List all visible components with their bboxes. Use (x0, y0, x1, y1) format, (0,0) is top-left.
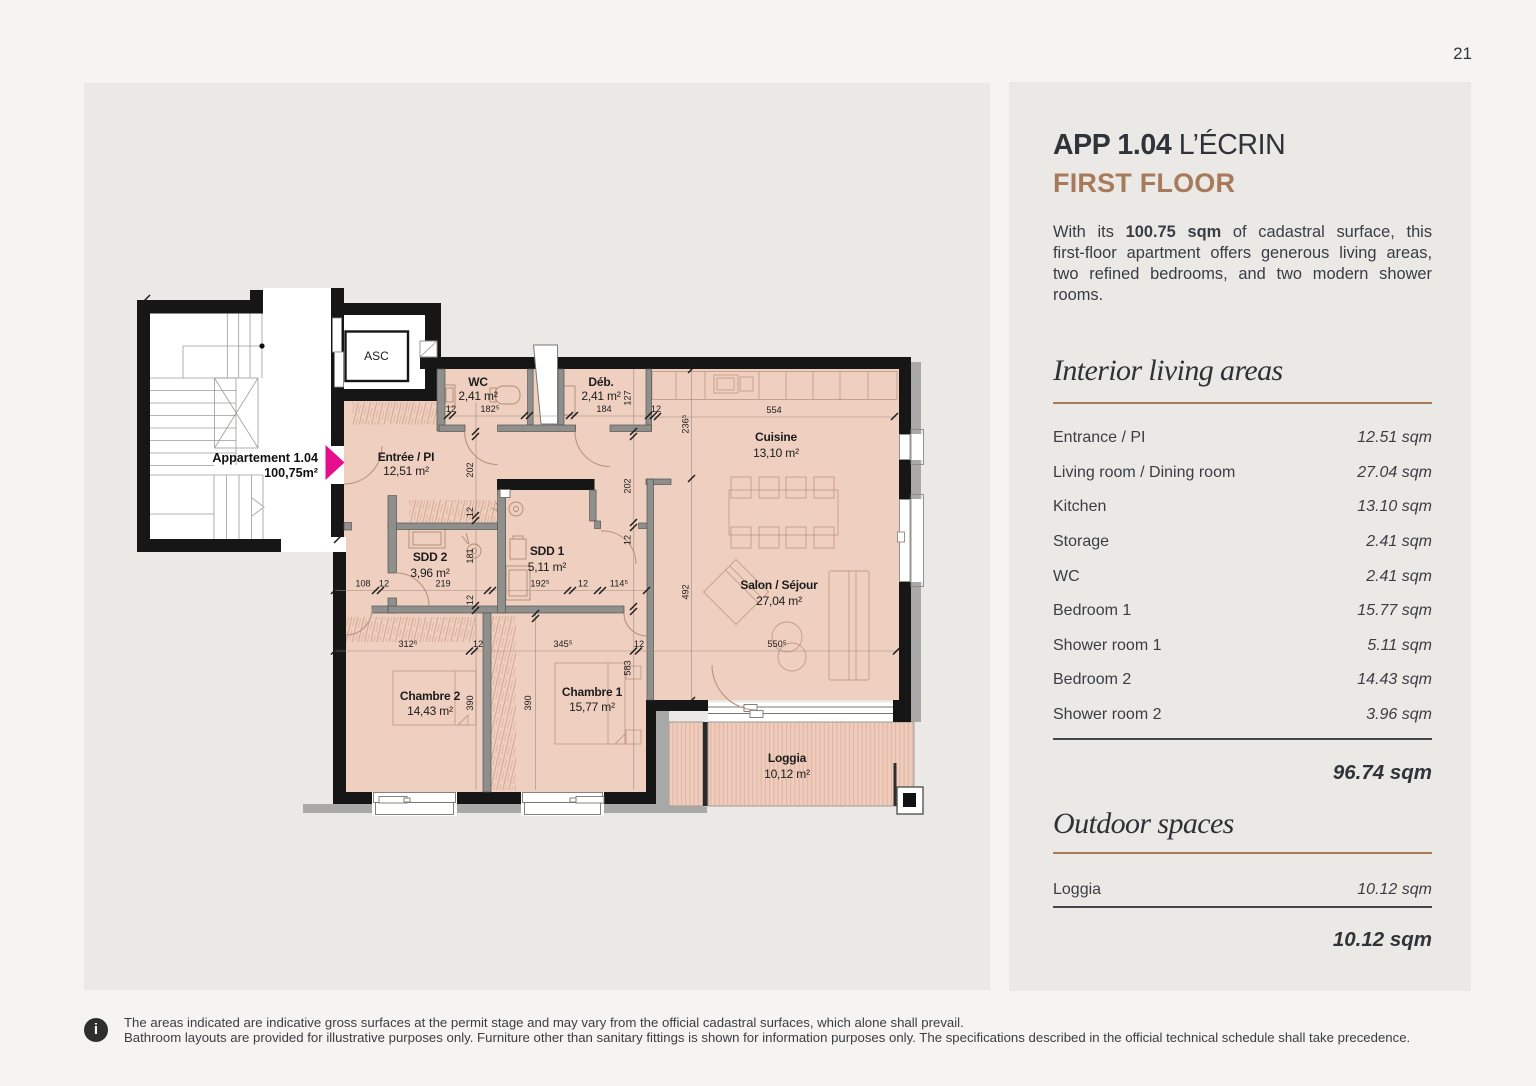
svg-text:SDD 2: SDD 2 (413, 550, 448, 564)
svg-text:12: 12 (379, 579, 389, 589)
svg-text:Salon / Séjour: Salon / Séjour (740, 578, 818, 592)
svg-text:Déb.: Déb. (588, 375, 613, 389)
svg-text:390: 390 (465, 695, 475, 710)
svg-text:108: 108 (355, 579, 370, 589)
svg-text:12: 12 (473, 639, 483, 649)
svg-text:554: 554 (766, 405, 781, 415)
svg-text:12: 12 (634, 639, 644, 649)
svg-text:Chambre 2: Chambre 2 (400, 689, 461, 703)
svg-text:12: 12 (651, 404, 661, 414)
svg-text:12: 12 (578, 579, 588, 589)
svg-text:5,11 m²: 5,11 m² (528, 560, 567, 574)
svg-text:SDD 1: SDD 1 (530, 544, 565, 558)
svg-text:12: 12 (446, 404, 456, 414)
svg-text:390: 390 (523, 695, 533, 710)
svg-text:312⁶: 312⁶ (398, 639, 417, 649)
svg-text:192⁵: 192⁵ (530, 579, 549, 589)
svg-text:184: 184 (596, 404, 611, 414)
svg-text:114⁵: 114⁵ (610, 579, 629, 589)
svg-text:12,51 m²: 12,51 m² (383, 464, 429, 478)
svg-text:13,10 m²: 13,10 m² (753, 446, 799, 460)
svg-text:Chambre 1: Chambre 1 (562, 685, 623, 699)
svg-text:219: 219 (435, 579, 450, 589)
svg-text:12: 12 (465, 595, 475, 605)
svg-text:Entrée / PI: Entrée / PI (378, 450, 435, 464)
svg-text:14,43 m²: 14,43 m² (407, 704, 453, 718)
svg-text:550⁵: 550⁵ (767, 639, 786, 649)
svg-text:182⁵: 182⁵ (480, 404, 499, 414)
svg-text:ASC: ASC (364, 349, 389, 363)
svg-text:10,12 m²: 10,12 m² (764, 767, 810, 781)
svg-text:202: 202 (623, 478, 633, 493)
svg-text:345⁵: 345⁵ (553, 639, 572, 649)
svg-text:127: 127 (623, 390, 633, 405)
svg-text:Appartement 1.04: Appartement 1.04 (212, 451, 318, 465)
svg-text:2,41 m²: 2,41 m² (581, 389, 620, 403)
svg-text:Loggia: Loggia (768, 751, 807, 765)
svg-text:2,41 m²: 2,41 m² (458, 389, 497, 403)
svg-text:Cuisine: Cuisine (755, 430, 797, 444)
svg-text:181: 181 (465, 548, 475, 563)
svg-text:12: 12 (465, 507, 475, 517)
svg-text:15,77 m²: 15,77 m² (569, 700, 615, 714)
svg-text:236⁵: 236⁵ (681, 414, 691, 433)
svg-text:WC: WC (468, 375, 488, 389)
svg-text:202: 202 (465, 462, 475, 477)
svg-text:27,04 m²: 27,04 m² (756, 594, 802, 608)
svg-text:492: 492 (681, 584, 691, 599)
svg-text:100,75m²: 100,75m² (264, 466, 318, 480)
svg-text:3,96 m²: 3,96 m² (410, 566, 449, 580)
svg-text:583: 583 (623, 660, 633, 675)
svg-text:12: 12 (623, 535, 633, 545)
